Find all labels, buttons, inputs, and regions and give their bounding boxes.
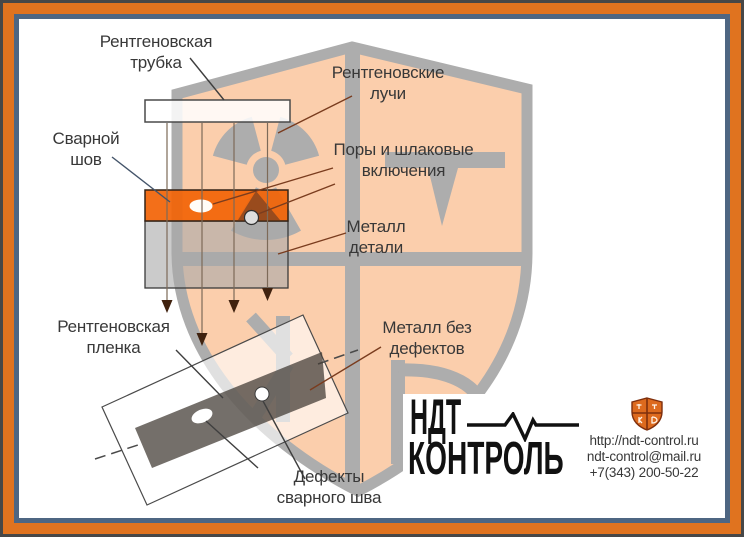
label-xray-rays: Рентгеновские лучи <box>310 62 466 105</box>
label-xray-film: Рентгеновская пленка <box>41 316 186 359</box>
weld-slag-inclusion <box>245 211 259 225</box>
watermark-cross-vertical <box>345 45 360 495</box>
xray-tube-block <box>145 100 290 122</box>
contact-block: http://ndt-control.ru ndt-control@mail.r… <box>564 433 724 482</box>
label-weld-defects: Дефекты сварного шва <box>263 466 395 509</box>
ndt-radiography-diagram-page: Рентгеновская трубка Рентгеновские лучи … <box>0 0 744 537</box>
label-metal-no-defects: Металл без дефектов <box>374 317 480 360</box>
email-text: ndt-control@mail.ru <box>564 449 724 465</box>
weld-pore <box>190 200 213 213</box>
phone-text: +7(343) 200-50-22 <box>564 465 724 481</box>
ndt-shield-icon <box>630 397 664 431</box>
label-pores-inclusions: Поры и шлаковые включения <box>322 139 485 182</box>
film-defect-inclusion-spot <box>255 387 269 401</box>
website-text: http://ndt-control.ru <box>564 433 724 449</box>
ndt-control-logo: НДТ КОНТРОЛЬ <box>403 394 585 492</box>
logo-text-kontrol: КОНТРОЛЬ <box>408 438 564 478</box>
label-xray-tube: Рентгеновская трубка <box>78 31 234 74</box>
label-weld-seam: Сварной шов <box>36 128 136 171</box>
label-part-metal: Металл детали <box>336 216 416 259</box>
